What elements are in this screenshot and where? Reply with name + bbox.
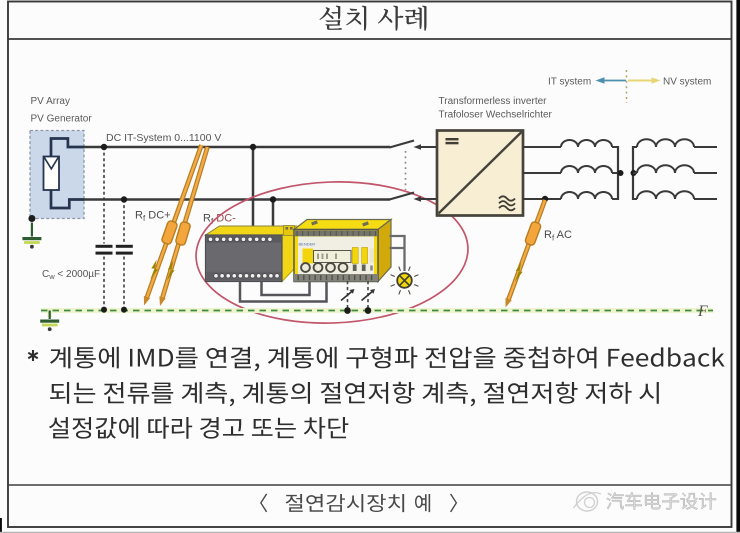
svg-text:PV Generator: PV Generator — [31, 114, 93, 125]
svg-text:Rf DC-: Rf DC- — [203, 213, 236, 227]
svg-text:IT system: IT system — [548, 77, 591, 88]
svg-text:Trafoloser Wechselrichter: Trafoloser Wechselrichter — [439, 110, 553, 121]
svg-text:DC IT-System 0...1100 V: DC IT-System 0...1100 V — [106, 132, 221, 144]
svg-text:Rf DC+: Rf DC+ — [135, 210, 171, 224]
svg-text:Cw < 2000µF: Cw < 2000µF — [42, 269, 100, 281]
svg-text:Transformerless inverter: Transformerless inverter — [439, 96, 548, 107]
svg-text:PV Array: PV Array — [31, 96, 70, 107]
svg-text:Rf AC: Rf AC — [544, 229, 572, 243]
svg-text:BENDER: BENDER — [299, 242, 316, 247]
svg-text:NV system: NV system — [663, 77, 711, 88]
svg-text:F: F — [697, 303, 708, 320]
